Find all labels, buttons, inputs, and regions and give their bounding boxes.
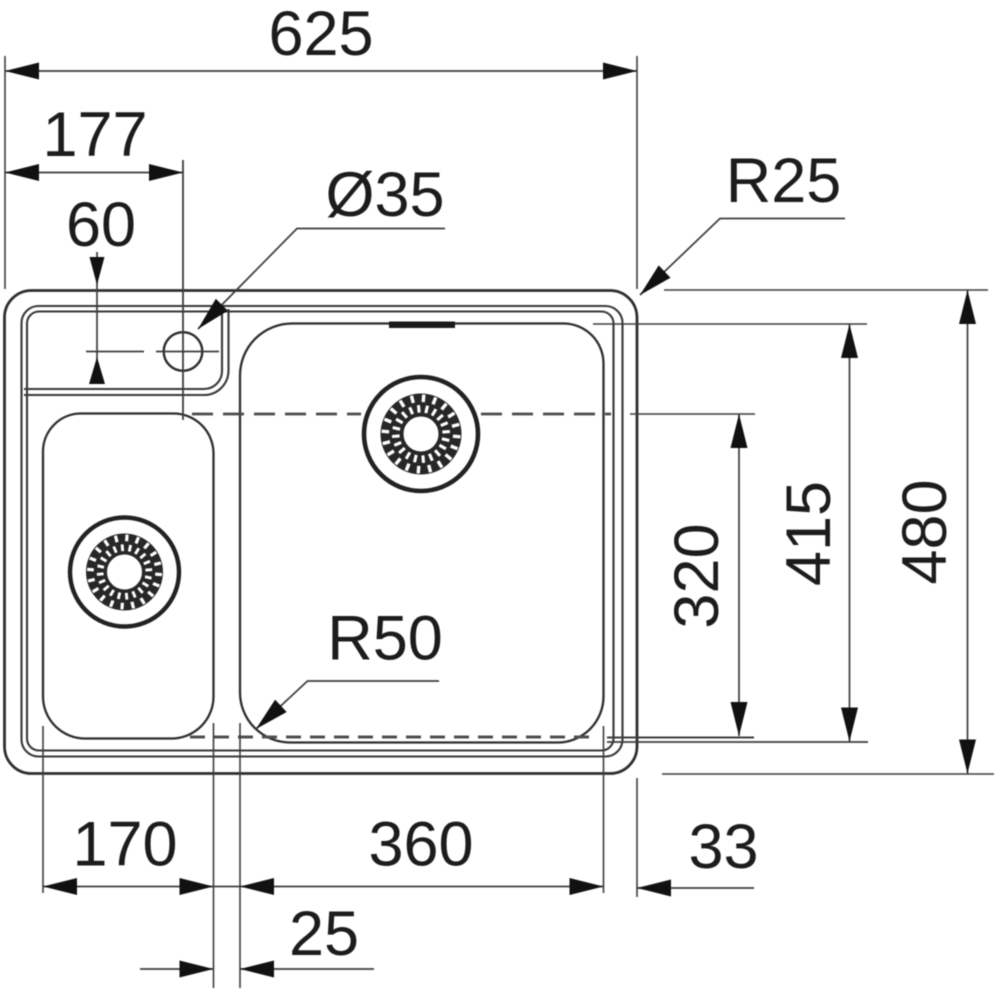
svg-text:25: 25: [289, 899, 359, 969]
svg-text:60: 60: [66, 190, 136, 260]
svg-text:415: 415: [774, 481, 844, 586]
svg-text:R25: R25: [726, 146, 842, 216]
svg-text:33: 33: [688, 812, 758, 882]
svg-text:Ø35: Ø35: [325, 160, 444, 230]
svg-text:625: 625: [268, 0, 373, 69]
svg-text:R50: R50: [327, 604, 443, 674]
svg-text:177: 177: [42, 100, 147, 170]
svg-text:480: 480: [890, 479, 960, 584]
svg-text:320: 320: [662, 523, 732, 628]
svg-text:170: 170: [72, 810, 177, 880]
svg-text:360: 360: [368, 810, 473, 880]
